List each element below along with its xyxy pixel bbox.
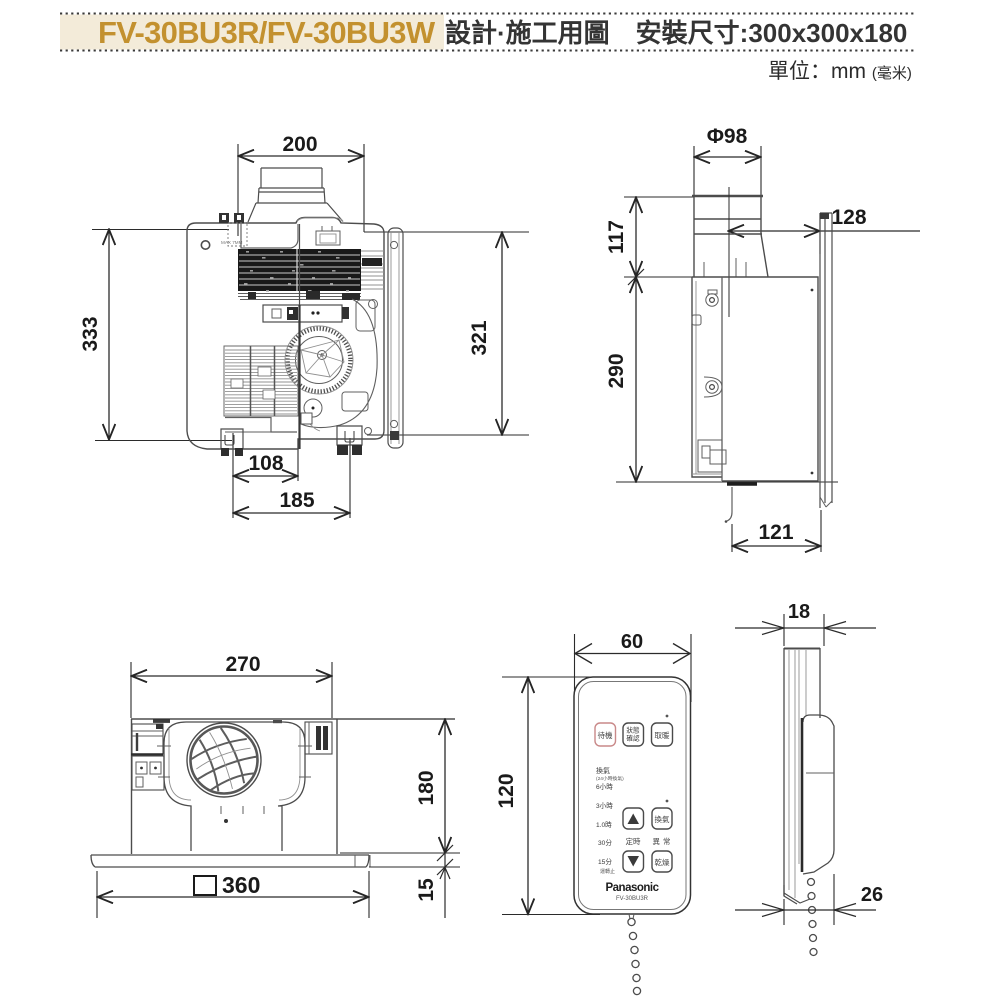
svg-text:FV-30BU3R: FV-30BU3R	[616, 896, 649, 902]
svg-text:128: 128	[831, 206, 866, 229]
svg-text:121: 121	[758, 521, 793, 544]
svg-text:180: 180	[415, 770, 438, 805]
svg-text:確認: 確認	[626, 734, 640, 743]
svg-text:15: 15	[415, 878, 438, 902]
svg-text:117: 117	[605, 220, 628, 254]
svg-text:異常: 異常	[653, 837, 674, 846]
svg-text:待機: 待機	[598, 730, 613, 740]
svg-text:乾燥: 乾燥	[655, 857, 670, 867]
svg-text:1.0時: 1.0時	[596, 821, 612, 829]
svg-text:18: 18	[788, 601, 810, 623]
svg-text:(24小時換氣): (24小時換氣)	[596, 775, 624, 782]
svg-text:290: 290	[605, 353, 628, 388]
svg-text:321: 321	[468, 320, 491, 355]
svg-text:30分: 30分	[598, 838, 612, 847]
svg-text:200: 200	[282, 133, 317, 156]
svg-text:換氣: 換氣	[655, 814, 670, 824]
svg-text:15分: 15分	[598, 857, 612, 866]
svg-text:120: 120	[495, 773, 518, 808]
svg-text:狀態: 狀態	[626, 726, 640, 735]
svg-text:333: 333	[79, 316, 102, 351]
svg-text:設計·施工用圖 安裝尺寸:300x300x180: 設計·施工用圖 安裝尺寸:300x300x180	[445, 18, 907, 48]
svg-text:換氣: 換氣	[596, 766, 610, 775]
svg-text:185: 185	[279, 489, 314, 512]
svg-text:定時: 定時	[626, 836, 641, 846]
svg-text:Panasonic: Panasonic	[605, 882, 659, 894]
svg-text:運轉止: 運轉止	[600, 868, 615, 875]
svg-text:Φ98: Φ98	[707, 125, 748, 148]
svg-text:26: 26	[861, 884, 883, 906]
svg-text:MAX 7MM: MAX 7MM	[221, 240, 243, 245]
svg-text:270: 270	[225, 653, 260, 676]
svg-text:3小時: 3小時	[596, 801, 613, 810]
svg-text:360: 360	[222, 872, 260, 898]
svg-text:FV-30BU3R/FV-30BU3W: FV-30BU3R/FV-30BU3W	[98, 15, 436, 50]
svg-text:6小時: 6小時	[596, 782, 613, 791]
svg-text:108: 108	[248, 452, 283, 475]
svg-text:60: 60	[621, 631, 643, 653]
svg-text:取暖: 取暖	[655, 731, 670, 740]
